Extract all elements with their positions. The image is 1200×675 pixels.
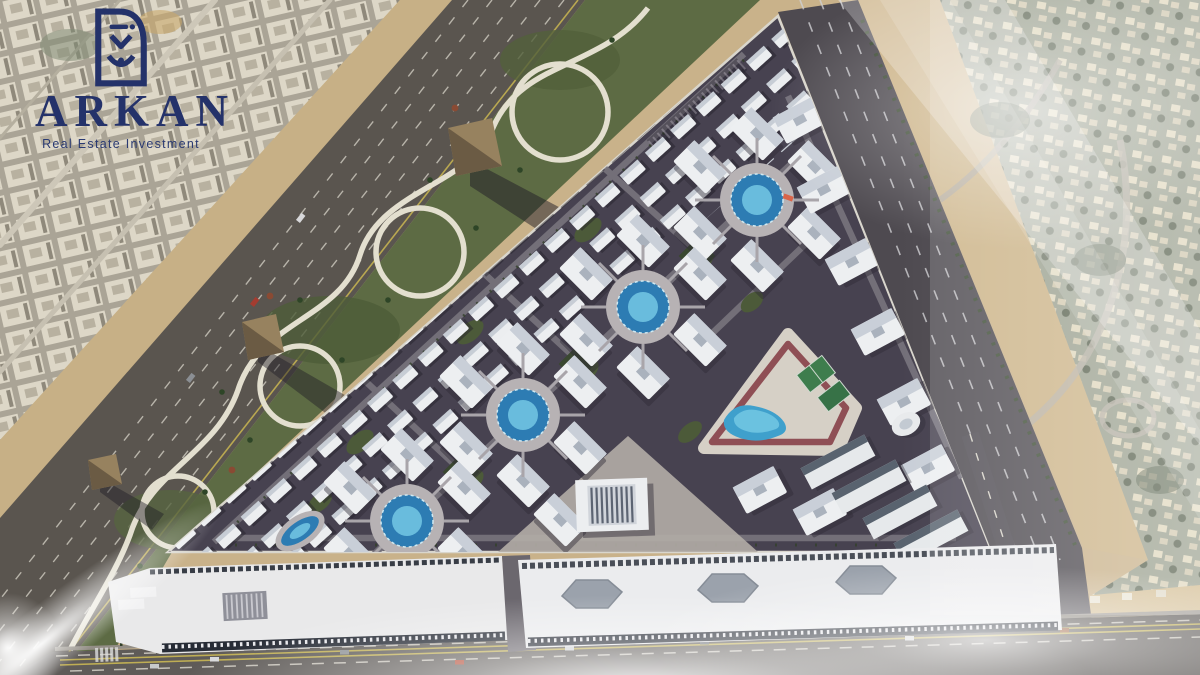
ribbed-roof-unit bbox=[222, 591, 267, 621]
brand-tagline: Real Estate Investment bbox=[28, 137, 214, 151]
monogram-bar bbox=[110, 25, 128, 29]
brand-name: ARKAN bbox=[28, 89, 214, 134]
monogram-chevron bbox=[111, 36, 130, 47]
arkan-arch-monogram-icon bbox=[86, 6, 156, 87]
clubhouse-ribbed-roof bbox=[575, 478, 655, 539]
arkan-logo: ARKAN Real Estate Investment bbox=[28, 6, 214, 151]
masterplan-aerial-image: ARKAN Real Estate Investment bbox=[0, 0, 1200, 675]
